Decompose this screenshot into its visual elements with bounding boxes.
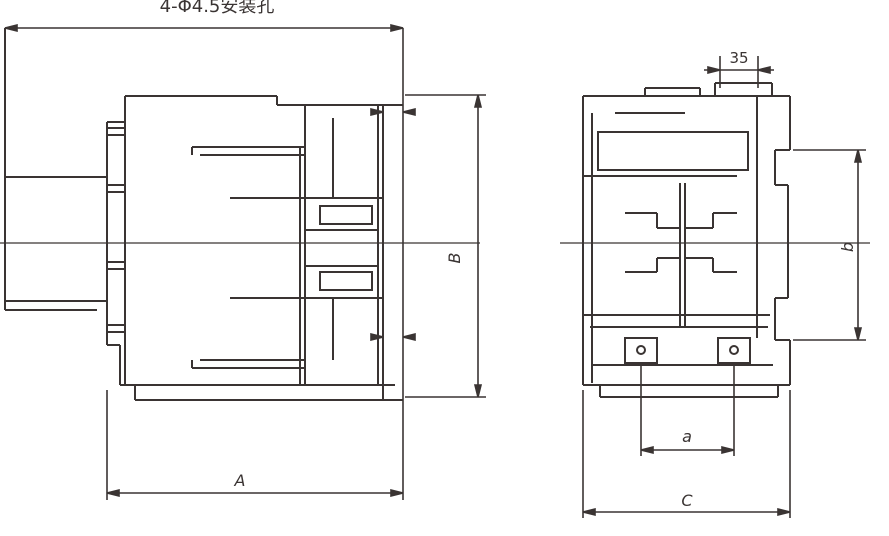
side-horizontal-spacing-label: a: [682, 427, 692, 446]
front-view-outline: [5, 28, 403, 400]
side-view-outline: [583, 83, 790, 397]
side-vertical-spacing-label: b: [838, 242, 857, 252]
front-view-terminal-windows: [305, 206, 378, 290]
contactor-dimension-drawing: 4-Φ4.5安装孔 A B 35 b a C: [0, 0, 889, 536]
side-view-mounting-feet: [625, 338, 750, 363]
front-width-label: A: [234, 471, 246, 490]
technical-drawing-page: 4-Φ4.5安装孔 A B 35 b a C: [0, 0, 889, 536]
din-rail-width-label: 35: [729, 49, 748, 67]
side-view-dimensions: [583, 56, 866, 518]
side-depth-label: C: [681, 491, 693, 510]
front-height-label: B: [445, 253, 464, 264]
mounting-holes-note: 4-Φ4.5安装孔: [160, 0, 275, 17]
